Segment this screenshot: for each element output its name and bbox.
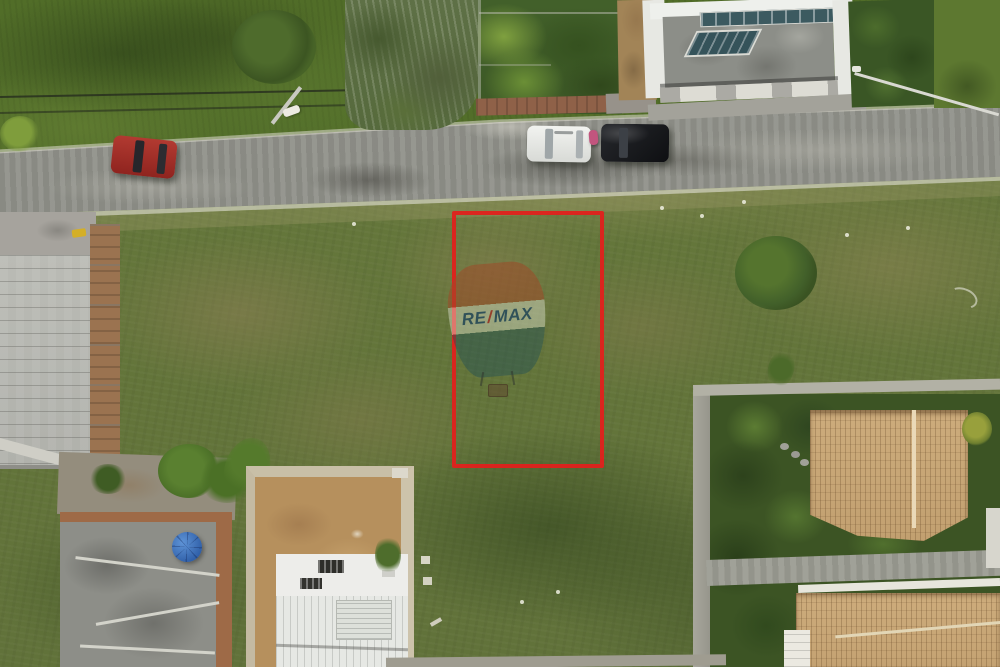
white-speck <box>700 214 704 218</box>
white-car-windshield <box>545 129 554 159</box>
scooter <box>588 130 598 146</box>
white-speck <box>352 222 356 226</box>
white-car-rear-window <box>575 130 583 159</box>
lot-bush <box>375 535 401 575</box>
roof-vent <box>318 560 344 573</box>
garden-wall-line <box>479 12 621 14</box>
stepping-stone <box>791 451 800 458</box>
white-speck <box>742 200 746 204</box>
white-tile <box>421 556 430 564</box>
stepping-stone <box>800 459 809 466</box>
wispy-trees <box>345 0 480 130</box>
bush <box>0 116 40 152</box>
small-white-building <box>784 630 810 667</box>
white-speck <box>845 233 849 237</box>
watermark-re: RE <box>461 308 487 330</box>
red-car <box>110 135 178 179</box>
white-car <box>527 125 592 162</box>
slab-building <box>60 512 232 667</box>
lot-tree <box>735 236 817 310</box>
brick-boundary-wall <box>90 224 120 464</box>
pole-cap <box>852 66 861 72</box>
garden-brick-wall <box>476 95 610 116</box>
white-car-roofline <box>554 131 573 134</box>
roof-ridge <box>912 410 916 528</box>
stepping-stone <box>780 443 789 450</box>
boundary-wall-vertical <box>693 390 710 667</box>
bush <box>88 464 128 494</box>
red-car-windshield <box>132 140 145 173</box>
watermark-max: MAX <box>493 304 534 327</box>
hedge <box>848 0 940 108</box>
black-car <box>601 124 669 163</box>
garden-wall-line <box>479 64 551 66</box>
white-wall-right-edge <box>986 508 1000 568</box>
white-speck <box>660 206 664 210</box>
tile-roof-house <box>810 410 968 541</box>
roof-vent <box>300 578 322 589</box>
tree <box>232 10 316 84</box>
blue-umbrella <box>172 532 202 562</box>
roof-shutter-panel <box>336 600 392 640</box>
garden-wall-line <box>478 0 481 106</box>
warehouse-roof <box>0 255 94 469</box>
gate-block <box>392 468 408 478</box>
white-tile <box>423 577 432 585</box>
white-speck <box>520 600 524 604</box>
balloon-basket <box>488 384 508 397</box>
yellow-bush <box>962 412 992 446</box>
white-speck <box>556 590 560 594</box>
red-car-rear-window <box>156 143 167 174</box>
aerial-photo: RE/MAX <box>0 0 1000 667</box>
remax-watermark-text: RE/MAX <box>448 300 547 335</box>
black-car-windshield <box>619 128 628 158</box>
corner-grass <box>934 0 1000 108</box>
white-speck <box>906 226 910 230</box>
